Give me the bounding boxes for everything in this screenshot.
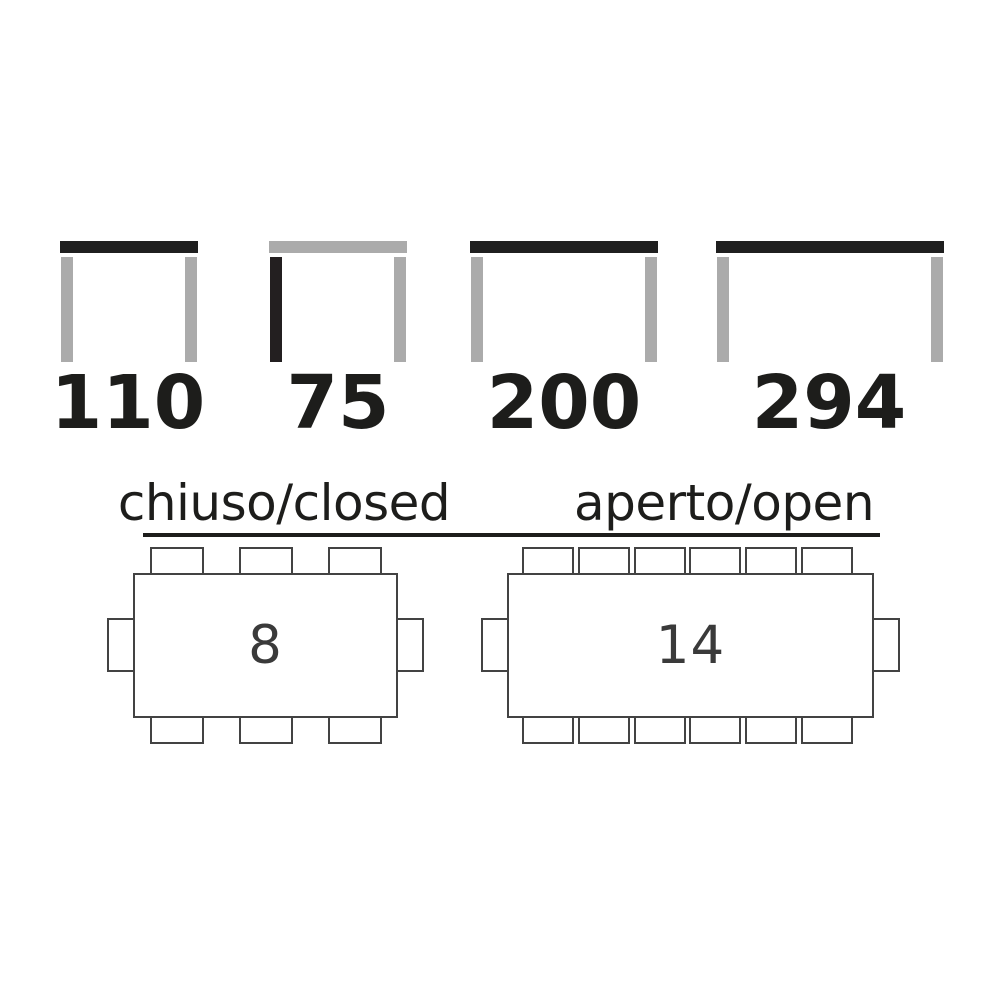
table-top-view-open: 14 (507, 573, 874, 718)
chair (328, 716, 382, 744)
closed-section-label: chiuso/closed (118, 477, 450, 529)
table-leg-left (61, 257, 73, 362)
table-side-view-width-fully-open (716, 241, 944, 363)
table-leg-right (931, 257, 943, 362)
table-leg-right (394, 257, 406, 362)
chair (150, 547, 204, 575)
chair (522, 716, 574, 744)
dimension-value-200: 200 (487, 366, 641, 440)
chair (872, 618, 900, 672)
table-side-view-width-closed (60, 241, 198, 363)
table-leg-left (471, 257, 483, 362)
chair (801, 716, 853, 744)
table-top-view-closed: 8 (133, 573, 398, 718)
chair (745, 716, 797, 744)
table-dimensions-diagram: 110 75 200 294 chiuso/closed aperto/open… (0, 0, 1000, 1000)
chair (239, 716, 293, 744)
chair (328, 547, 382, 575)
chair (689, 716, 741, 744)
table-side-view-height (269, 241, 407, 363)
tabletop-closed: 8 (133, 573, 398, 718)
dimension-value-110: 110 (51, 366, 205, 440)
tabletop-bar (269, 241, 407, 253)
table-leg-right (185, 257, 197, 362)
chair (522, 547, 574, 575)
chair (107, 618, 135, 672)
seat-count-closed: 8 (248, 615, 283, 676)
tabletop-bar (470, 241, 658, 253)
dimension-value-294: 294 (752, 366, 906, 440)
table-leg-left (270, 257, 282, 362)
chair (578, 716, 630, 744)
chair (689, 547, 741, 575)
chair (634, 547, 686, 575)
chair (745, 547, 797, 575)
dimension-value-75: 75 (287, 366, 390, 440)
table-leg-right (645, 257, 657, 362)
chair (481, 618, 509, 672)
chair (396, 618, 424, 672)
chair (578, 547, 630, 575)
tabletop-bar (60, 241, 198, 253)
chair (150, 716, 204, 744)
seat-count-open: 14 (656, 615, 725, 676)
chair (239, 547, 293, 575)
tabletop-open: 14 (507, 573, 874, 718)
open-section-label: aperto/open (574, 477, 874, 529)
table-side-view-width-open (470, 241, 658, 363)
horizontal-divider (143, 533, 880, 537)
table-leg-left (717, 257, 729, 362)
tabletop-bar (716, 241, 944, 253)
chair (634, 716, 686, 744)
chair (801, 547, 853, 575)
